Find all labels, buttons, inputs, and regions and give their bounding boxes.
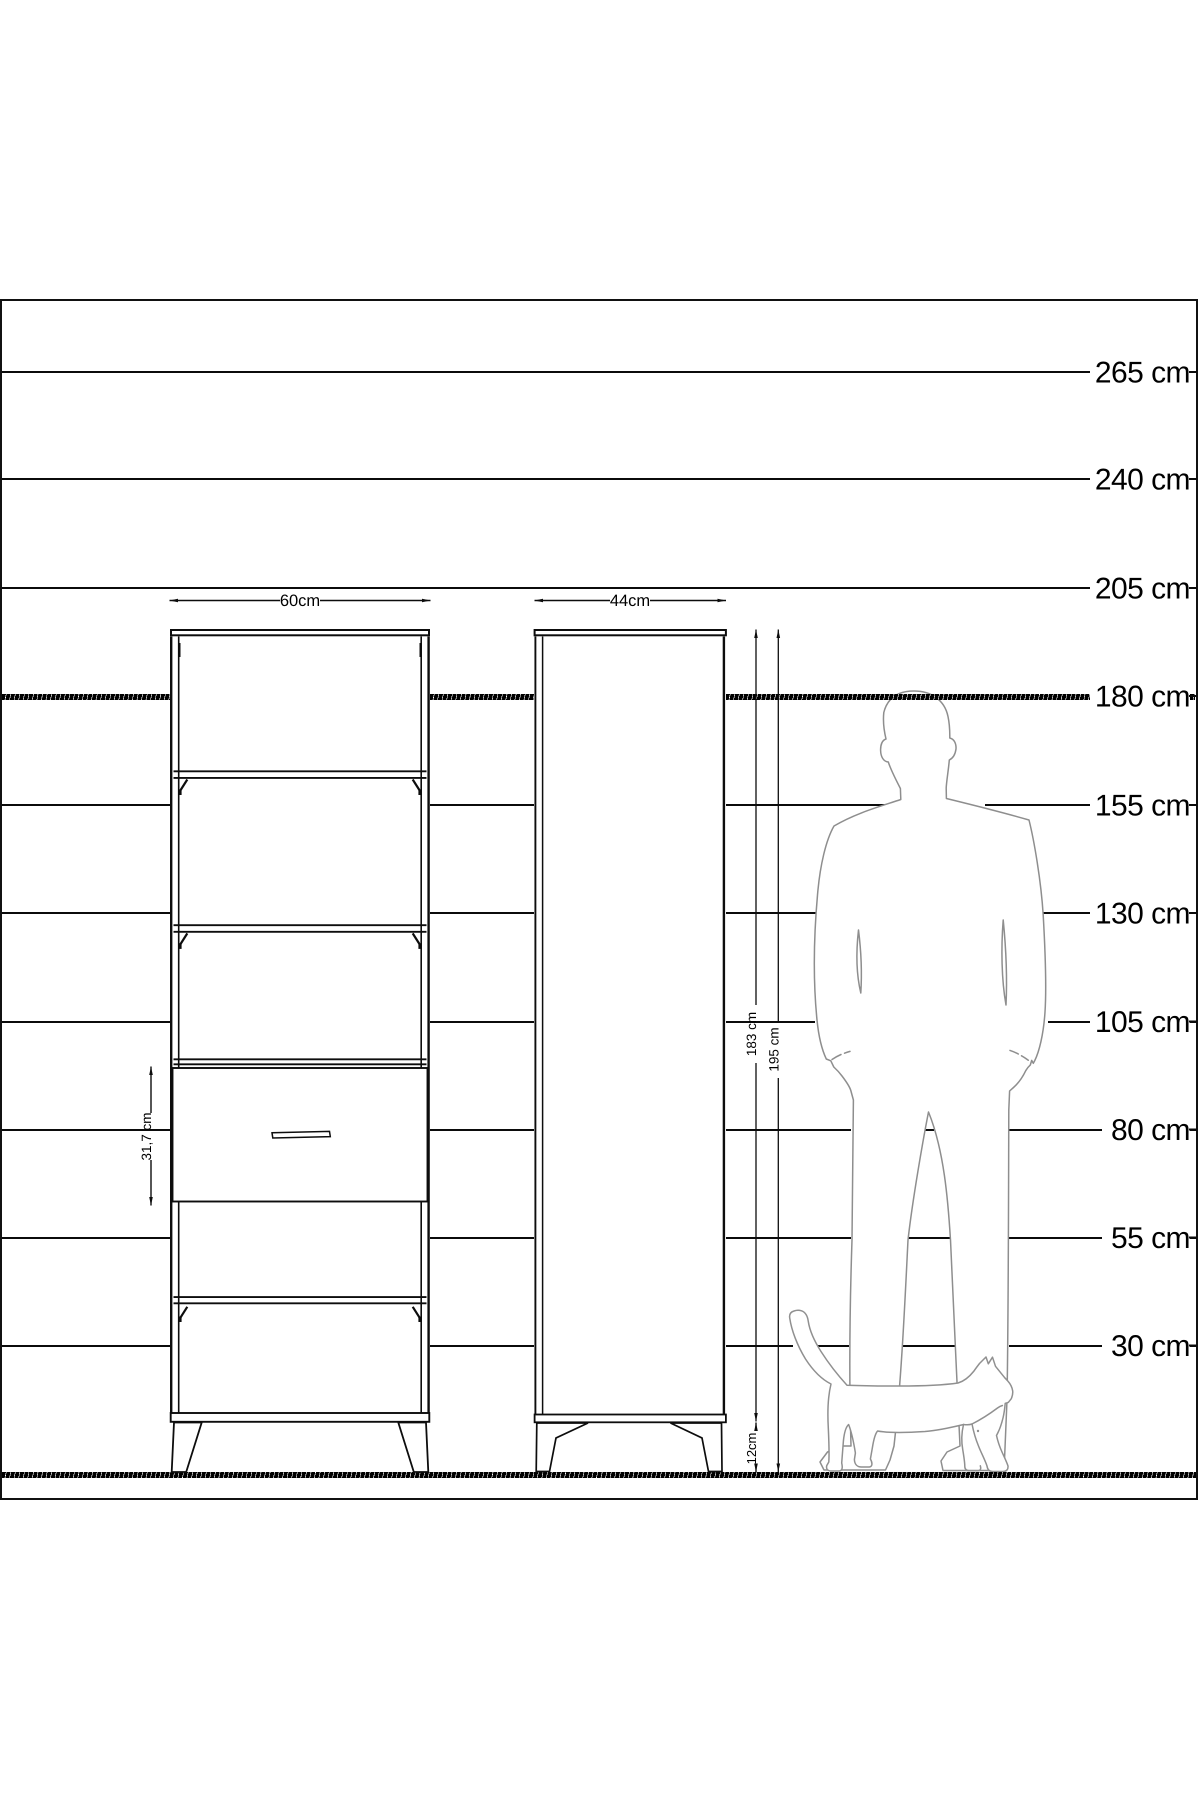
svg-text:80 cm: 80 cm	[1111, 1114, 1190, 1147]
svg-text:205 cm: 205 cm	[1095, 573, 1190, 606]
svg-text:55 cm: 55 cm	[1111, 1222, 1190, 1255]
svg-text:30 cm: 30 cm	[1111, 1330, 1190, 1363]
svg-text:180 cm: 180 cm	[1095, 681, 1190, 714]
svg-text:240 cm: 240 cm	[1095, 464, 1190, 497]
svg-text:265 cm: 265 cm	[1095, 357, 1190, 390]
svg-text:105 cm: 105 cm	[1095, 1006, 1190, 1039]
svg-text:130 cm: 130 cm	[1095, 898, 1190, 931]
svg-text:155 cm: 155 cm	[1095, 790, 1190, 823]
